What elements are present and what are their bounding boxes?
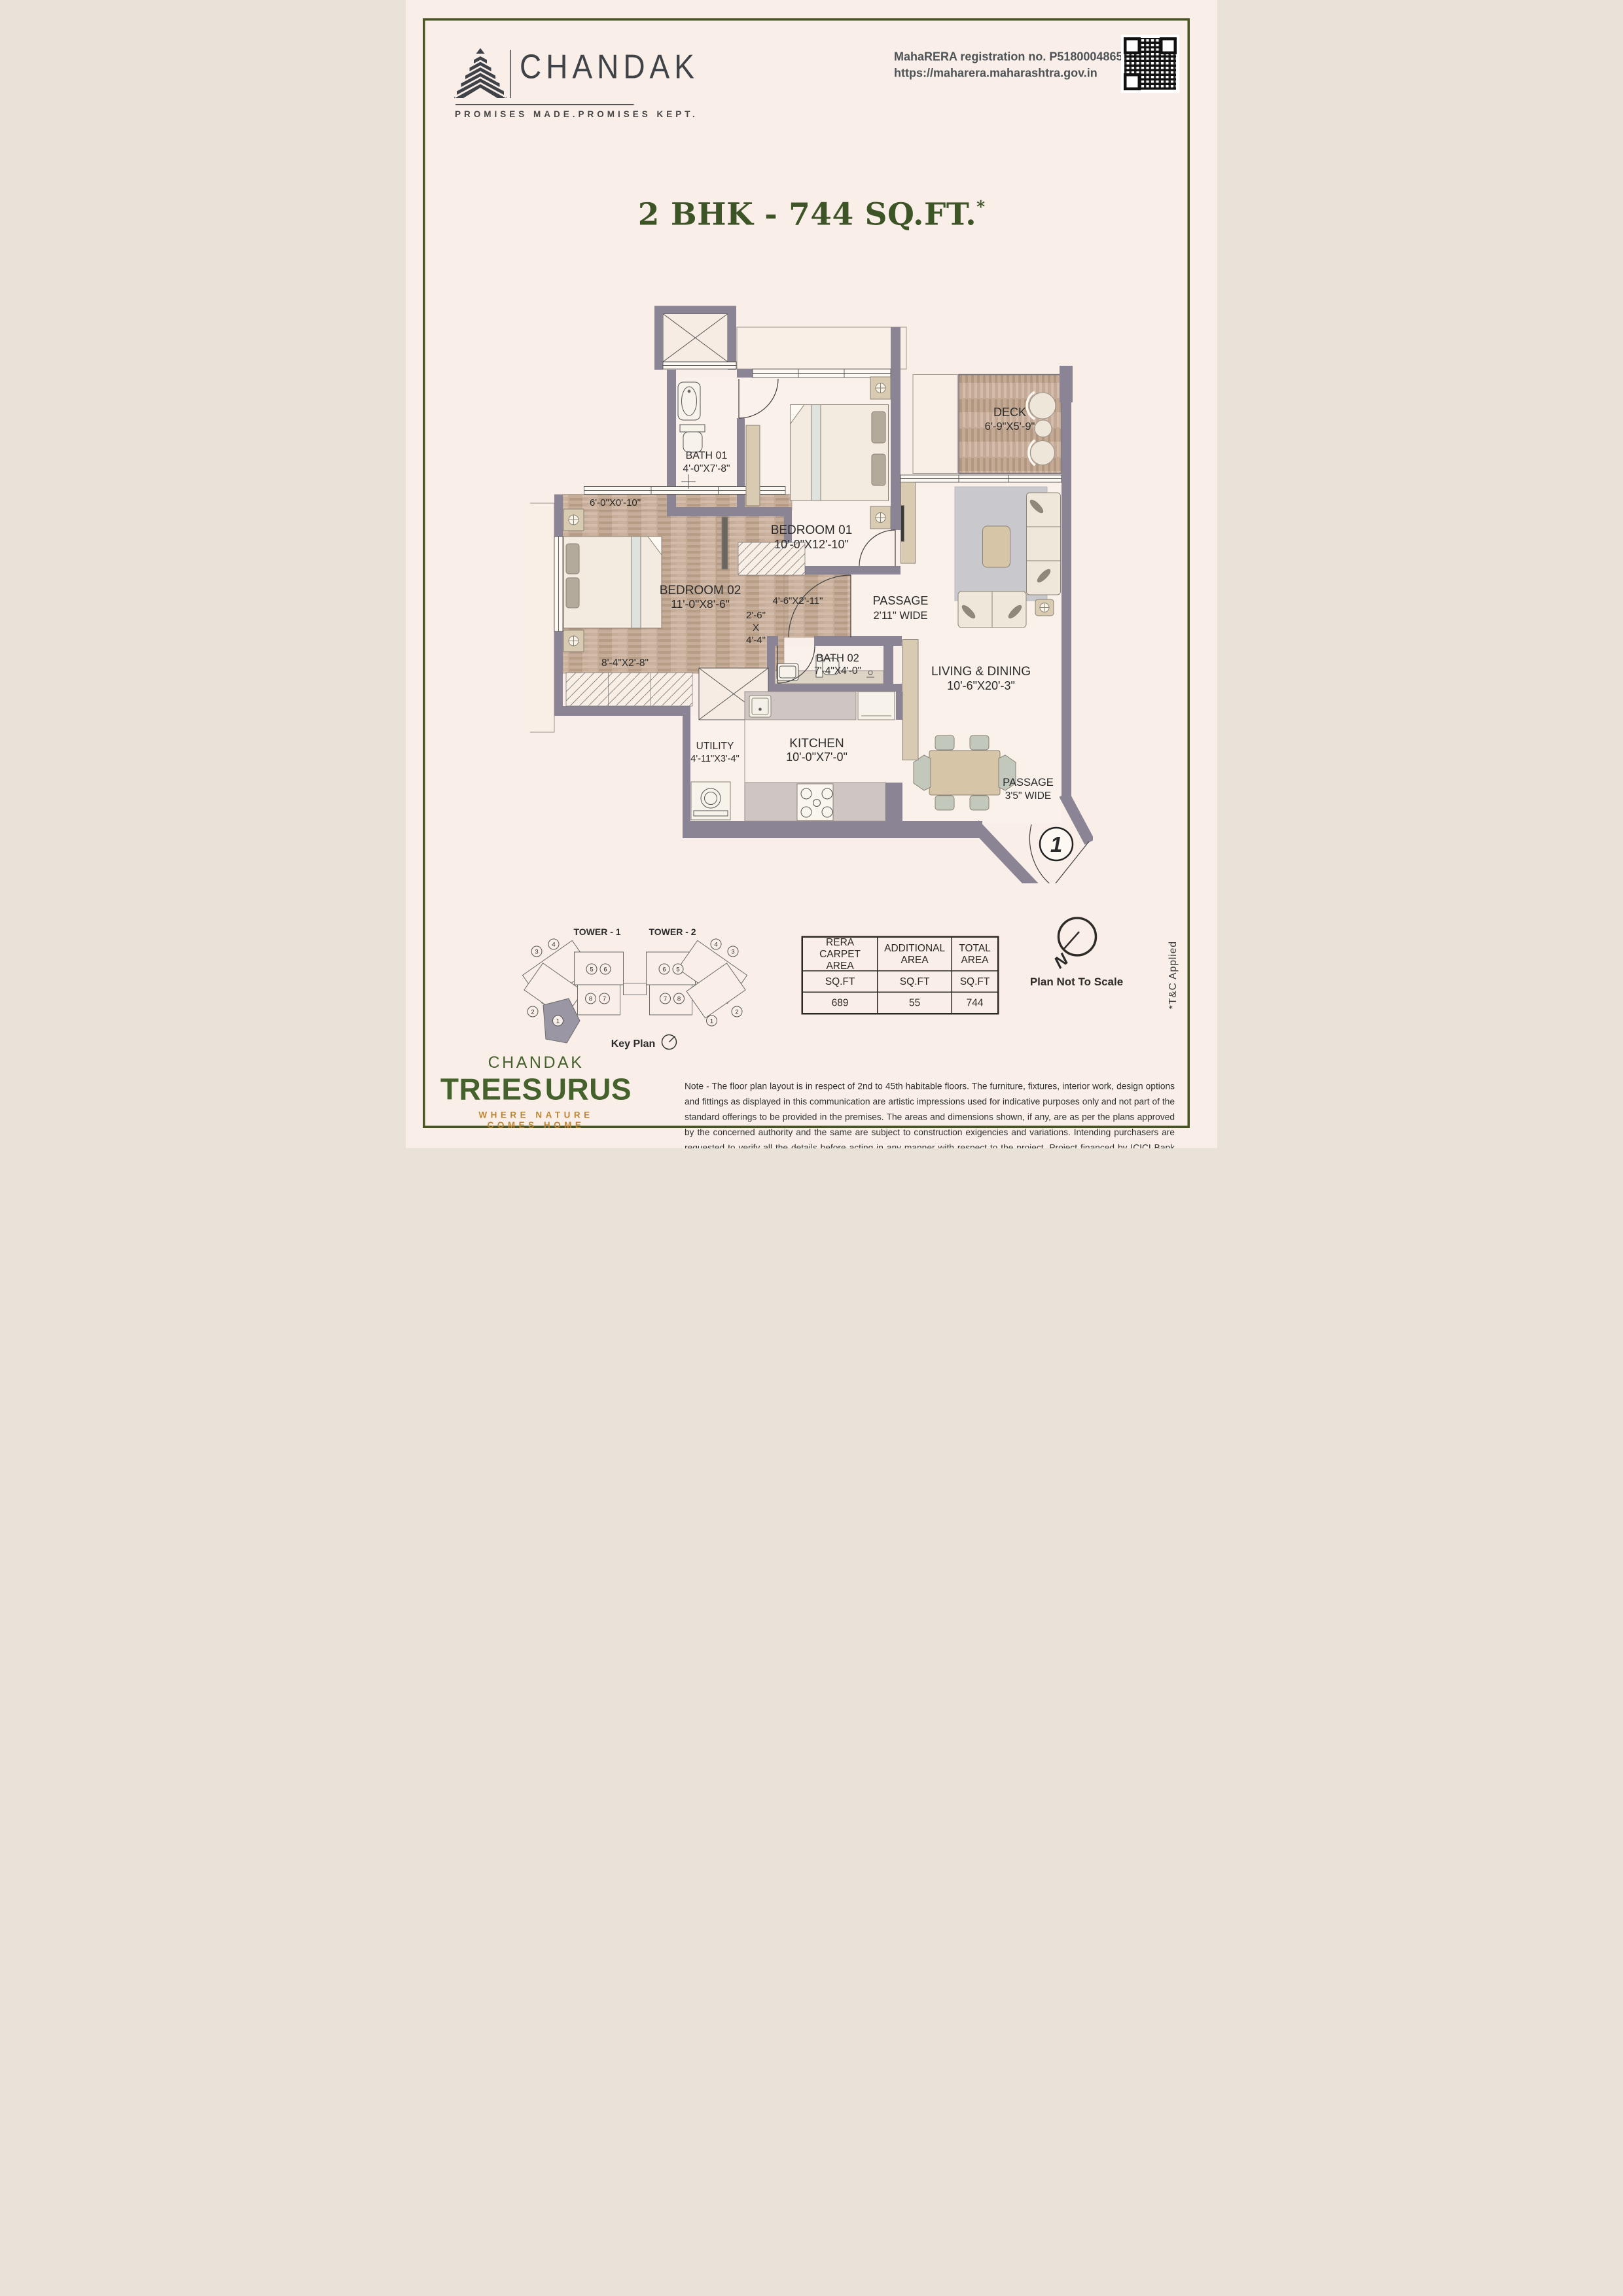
- svg-text:5: 5: [590, 966, 593, 974]
- area-header: TOTAL AREA: [952, 938, 997, 972]
- footer-brand-name: CHANDAK: [454, 1053, 618, 1072]
- key-plan: TOWER - 1 TOWER - 2 3 4 5 6 8 7 2 1 4 3 …: [504, 913, 766, 1053]
- svg-text:1: 1: [710, 1018, 713, 1025]
- brochure-page: CHANDAK PROMISES MADE.PROMISES KEPT. Mah…: [406, 0, 1217, 1148]
- tower1-label: TOWER - 1: [573, 927, 620, 937]
- stage: CHANDAK PROMISES MADE.PROMISES KEPT. Mah…: [406, 0, 1217, 1148]
- svg-text:3: 3: [535, 949, 538, 956]
- svg-text:BATH 01: BATH 01: [686, 450, 728, 461]
- footer-tagline: WHERE NATURE COMES HOME: [454, 1110, 618, 1131]
- area-value: 744: [952, 993, 997, 1013]
- logo-rule: [455, 104, 634, 105]
- svg-text:8: 8: [677, 996, 681, 1003]
- svg-text:UTILITY: UTILITY: [696, 741, 734, 752]
- svg-text:X: X: [753, 622, 759, 633]
- area-header: ADDITIONAL AREA: [878, 938, 952, 972]
- pyramid-logo-icon: [454, 46, 507, 98]
- svg-text:2: 2: [531, 1009, 534, 1016]
- svg-text:6'-9"X5'-9": 6'-9"X5'-9": [985, 421, 1035, 433]
- svg-text:LIVING & DINING: LIVING & DINING: [931, 665, 1031, 679]
- area-unit: SQ.FT: [803, 972, 878, 993]
- svg-text:5: 5: [676, 966, 679, 974]
- svg-text:11'-0"X8'-6": 11'-0"X8'-6": [671, 597, 730, 610]
- tnc-note: *T&C Applied: [1167, 941, 1179, 1009]
- svg-text:7: 7: [664, 996, 667, 1003]
- rera-url[interactable]: https://maharera.maharashtra.gov.in: [894, 65, 1129, 81]
- svg-text:2'11" WIDE: 2'11" WIDE: [874, 610, 928, 622]
- svg-text:PASSAGE: PASSAGE: [1003, 777, 1054, 788]
- qr-finder-icon: [1160, 37, 1177, 54]
- area-unit: SQ.FT: [952, 972, 997, 993]
- logo-divider: [510, 50, 511, 98]
- footer-brand: CHANDAK TREESURUS WHERE NATURE COMES HOM…: [454, 1053, 618, 1131]
- qr-finder-icon: [1124, 73, 1141, 90]
- svg-text:10'-0"X7'-0": 10'-0"X7'-0": [786, 751, 847, 764]
- svg-text:4'-6"X2'-11": 4'-6"X2'-11": [773, 595, 823, 607]
- svg-text:7: 7: [603, 996, 606, 1003]
- svg-text:4'-11"X3'-4": 4'-11"X3'-4": [690, 754, 739, 764]
- disclaimer-note: Note - The floor plan layout is in respe…: [685, 1078, 1175, 1148]
- floor-plan: 1 BATH 01 4'-0"X7'-8" BEDROOM 01 10'-0"X…: [530, 288, 1093, 883]
- svg-text:4: 4: [714, 942, 717, 949]
- page-title: 2 BHK - 744 SQ.FT.*: [406, 196, 1217, 232]
- svg-text:6: 6: [662, 966, 666, 974]
- qr-finder-icon: [1124, 37, 1141, 54]
- qr-code: [1121, 35, 1179, 93]
- brand-tagline: PROMISES MADE.PROMISES KEPT.: [455, 109, 698, 120]
- key-plan-caption: Key Plan: [611, 1038, 656, 1050]
- svg-text:DECK: DECK: [993, 406, 1026, 419]
- area-table: RERA CARPET AREA ADDITIONAL AREA TOTAL A…: [802, 936, 999, 1015]
- svg-text:KITCHEN: KITCHEN: [789, 737, 844, 751]
- footer-brand-right: URUS: [545, 1072, 632, 1107]
- plan-not-to-scale: Plan Not To Scale: [1014, 976, 1139, 989]
- key-plan-north-icon: [662, 1035, 677, 1050]
- svg-text:6'-0"X0'-10": 6'-0"X0'-10": [590, 497, 641, 508]
- area-header: RERA CARPET AREA: [803, 938, 878, 972]
- area-value: 55: [878, 993, 952, 1013]
- svg-text:10'-6"X20'-3": 10'-6"X20'-3": [947, 679, 1015, 692]
- tower2-label: TOWER - 2: [649, 927, 696, 937]
- svg-text:4: 4: [552, 942, 555, 949]
- svg-text:10'-0"X12'-10": 10'-0"X12'-10": [774, 538, 849, 551]
- svg-text:8: 8: [589, 996, 592, 1003]
- area-unit: SQ.FT: [878, 972, 952, 993]
- entrance-marker: 1: [1040, 828, 1073, 860]
- svg-text:2'-6": 2'-6": [746, 610, 766, 621]
- svg-text:4'-4": 4'-4": [746, 635, 766, 646]
- svg-text:2: 2: [735, 1009, 738, 1016]
- svg-text:BEDROOM 02: BEDROOM 02: [660, 584, 741, 597]
- svg-text:PASSAGE: PASSAGE: [873, 594, 929, 607]
- area-value: 689: [803, 993, 878, 1013]
- svg-text:BEDROOM 01: BEDROOM 01: [771, 523, 853, 537]
- svg-text:BATH 02: BATH 02: [816, 652, 859, 664]
- svg-text:7'-4"X4'-0": 7'-4"X4'-0": [814, 665, 861, 677]
- north-arrow-icon: N: [1050, 910, 1106, 975]
- rera-block: MahaRERA registration no. P51800048658 h…: [894, 48, 1129, 81]
- svg-text:1: 1: [556, 1018, 560, 1025]
- title-text: 2 BHK - 744 SQ.FT.: [638, 196, 976, 232]
- svg-text:3'5" WIDE: 3'5" WIDE: [1005, 790, 1051, 802]
- svg-text:8'-4"X2'-8": 8'-4"X2'-8": [601, 658, 649, 669]
- svg-text:6: 6: [603, 966, 607, 974]
- title-asterisk: *: [976, 197, 985, 217]
- brand-name: CHANDAK: [520, 48, 699, 86]
- footer-brand-logo: TREESURUS: [454, 1072, 618, 1107]
- svg-text:4'-0"X7'-8": 4'-0"X7'-8": [683, 463, 730, 474]
- footer-brand-left: TREES: [440, 1072, 543, 1107]
- rera-registration: MahaRERA registration no. P51800048658: [894, 48, 1129, 65]
- svg-text:3: 3: [731, 949, 734, 956]
- entrance-number: 1: [1050, 832, 1062, 857]
